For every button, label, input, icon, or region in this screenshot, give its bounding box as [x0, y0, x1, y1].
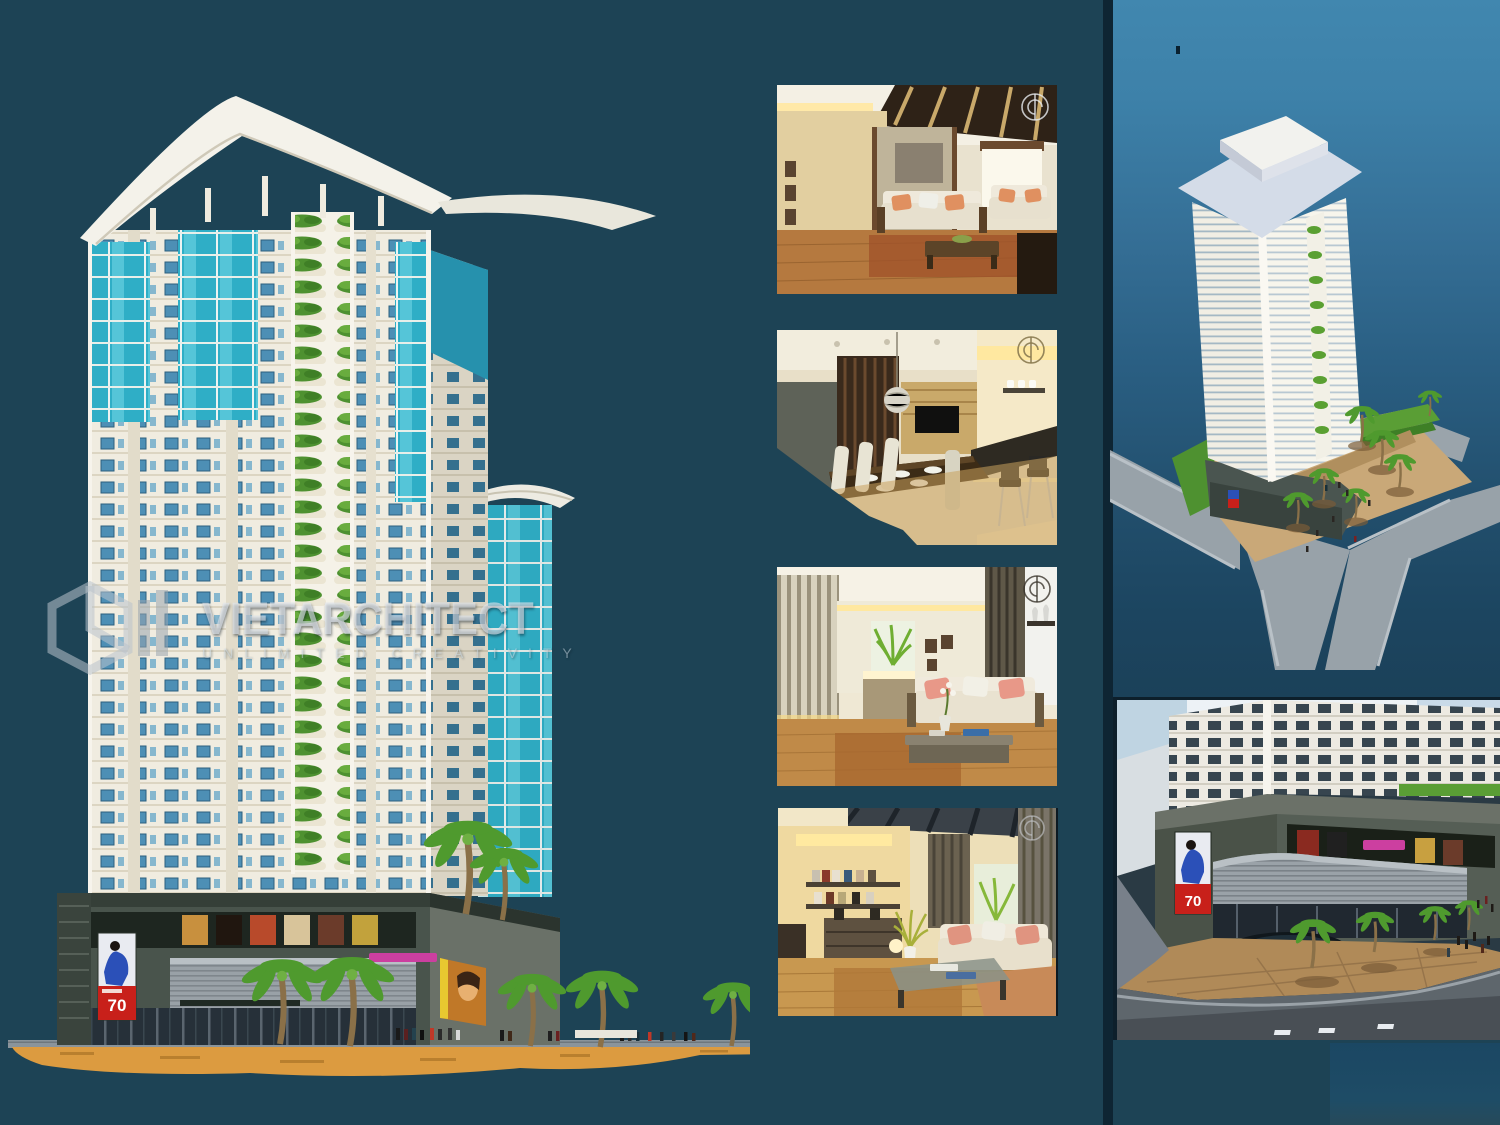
living-room-scene: [777, 85, 1057, 294]
ground-sand-strip: [8, 1040, 750, 1076]
plaza-sign: [1363, 840, 1405, 850]
palm-leaf-art: [871, 621, 915, 671]
plaza-sign: [369, 953, 437, 962]
dining-room-scene: [777, 330, 1057, 545]
family-room-scene: [778, 808, 1056, 1016]
background-patch: [1330, 1043, 1500, 1125]
architecture-presentation-board: 70: [0, 0, 1500, 1125]
lounge-scene: [777, 567, 1057, 786]
street-scene: 70: [1117, 700, 1500, 1040]
svg-text:70: 70: [1185, 893, 1202, 910]
tower-roof-canopy: [80, 96, 656, 246]
warm-poster: [440, 958, 486, 1026]
main-elevation-render: 70: [0, 80, 750, 1080]
interior-render-dining-room: [777, 330, 1057, 545]
main-tower: [88, 212, 488, 896]
street-render: 70: [1113, 697, 1500, 1040]
white-sofa: [907, 676, 1044, 727]
interior-render-living-room: [777, 85, 1057, 294]
aerial-render: [1110, 30, 1500, 690]
svg-text:70: 70: [108, 996, 127, 1015]
sale-poster: 70: [1175, 832, 1211, 914]
interior-render-lounge: [777, 567, 1057, 786]
sale-poster: 70: [98, 933, 136, 1020]
interior-render-family-room: [778, 808, 1058, 1016]
